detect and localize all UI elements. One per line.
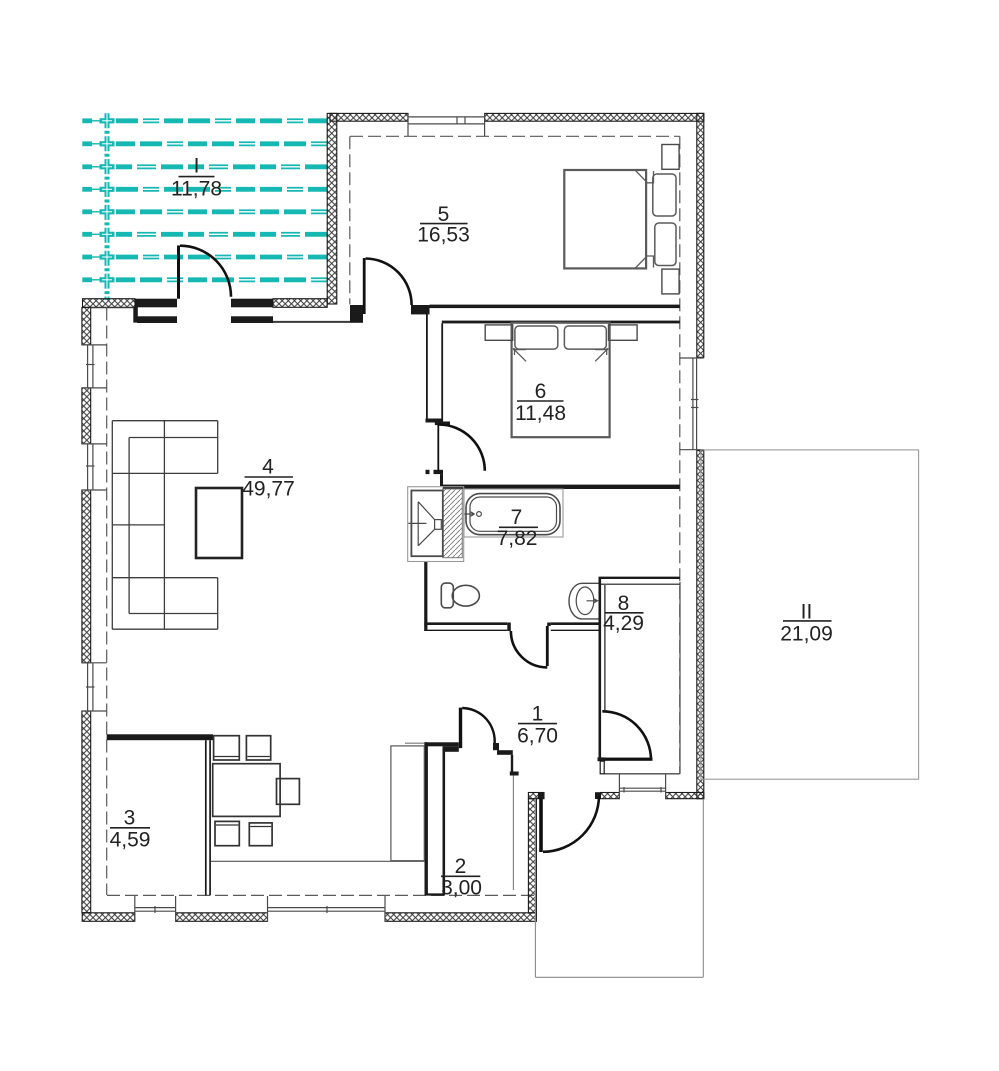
svg-text:7: 7 bbox=[511, 506, 523, 529]
svg-text:6: 6 bbox=[535, 380, 547, 403]
svg-text:4,29: 4,29 bbox=[603, 612, 644, 635]
svg-text:1: 1 bbox=[532, 703, 544, 726]
svg-text:2: 2 bbox=[455, 855, 467, 878]
svg-text:I: I bbox=[194, 155, 200, 178]
svg-text:11,48: 11,48 bbox=[515, 402, 566, 425]
svg-text:16,53: 16,53 bbox=[417, 224, 470, 247]
svg-text:6,70: 6,70 bbox=[517, 725, 558, 748]
svg-text:49,77: 49,77 bbox=[242, 478, 295, 501]
svg-text:II: II bbox=[801, 601, 813, 624]
svg-text:4: 4 bbox=[262, 456, 274, 479]
svg-text:3: 3 bbox=[124, 807, 136, 830]
svg-text:7,82: 7,82 bbox=[497, 527, 538, 550]
svg-text:21,09: 21,09 bbox=[780, 623, 833, 646]
svg-text:11,78: 11,78 bbox=[171, 178, 222, 201]
svg-text:4,59: 4,59 bbox=[110, 829, 151, 852]
svg-text:3,00: 3,00 bbox=[441, 877, 482, 900]
